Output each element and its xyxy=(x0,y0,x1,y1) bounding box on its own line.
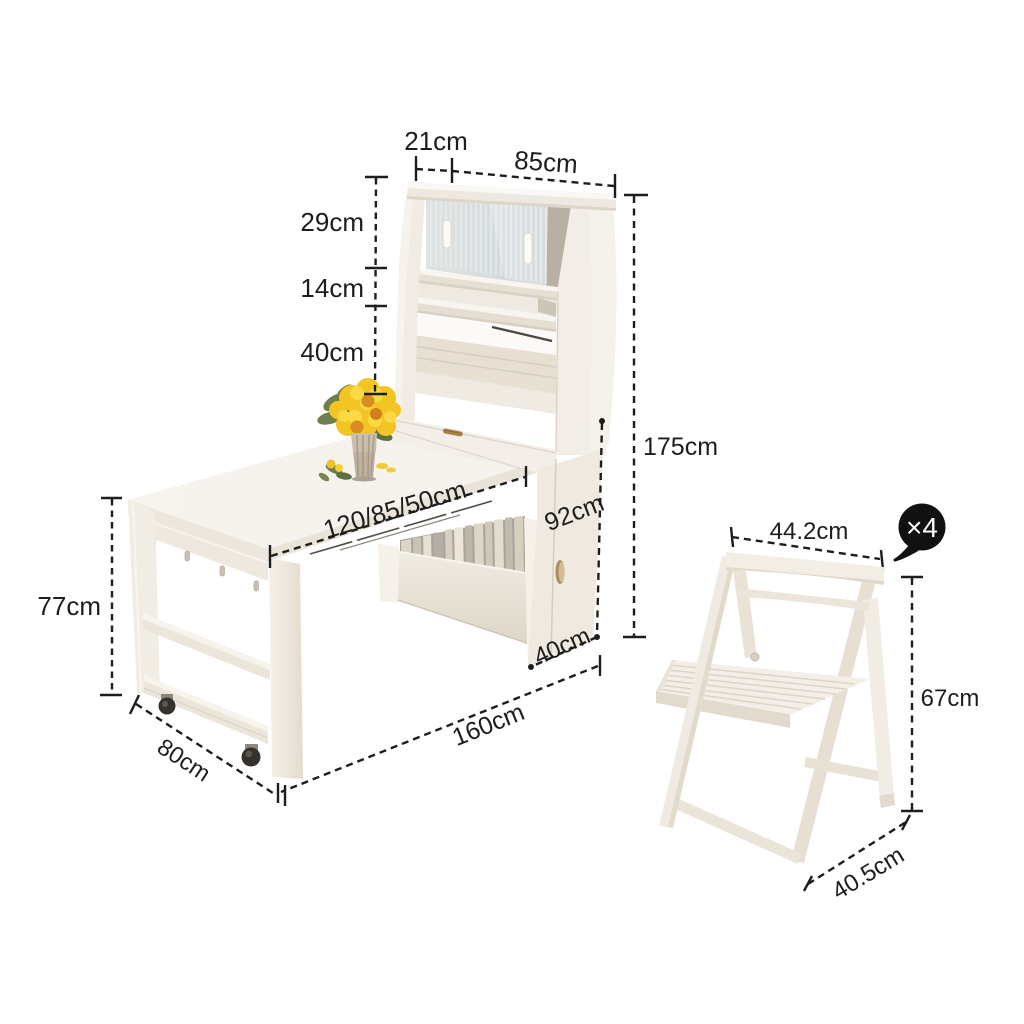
svg-text:44.2cm: 44.2cm xyxy=(770,518,849,545)
svg-text:77cm: 77cm xyxy=(37,591,101,621)
svg-text:21cm: 21cm xyxy=(404,126,468,156)
svg-text:175cm: 175cm xyxy=(643,433,718,461)
svg-text:×4: ×4 xyxy=(906,512,938,543)
svg-text:85cm: 85cm xyxy=(513,145,579,179)
svg-text:29cm: 29cm xyxy=(300,207,364,237)
svg-text:14cm: 14cm xyxy=(300,273,364,303)
svg-text:67cm: 67cm xyxy=(921,685,980,712)
svg-text:40cm: 40cm xyxy=(300,337,364,367)
